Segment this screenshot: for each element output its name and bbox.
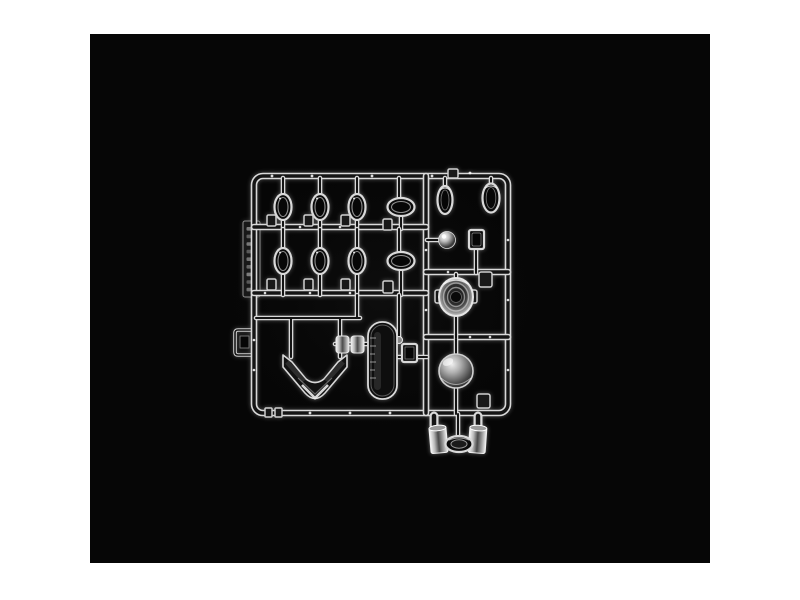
product-photo: [90, 34, 710, 563]
sprue-photo-illustration: [90, 34, 710, 563]
page-background: [0, 0, 800, 600]
